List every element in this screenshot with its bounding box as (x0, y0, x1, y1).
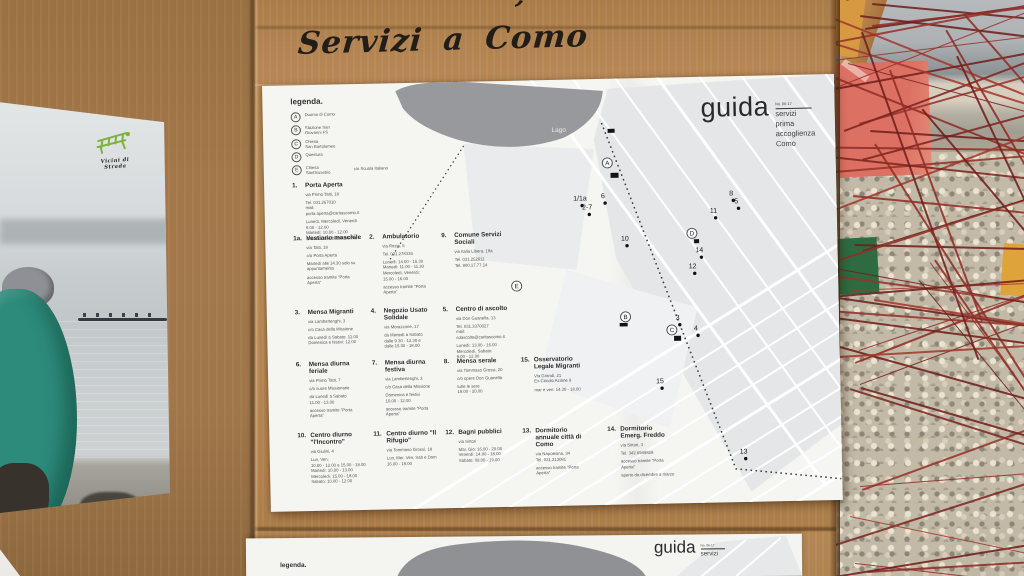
listing-item: 4.Negozio Usato Solidalevia Morazzone, 1… (371, 306, 440, 349)
listing-name: 5.Centro di ascolto (443, 305, 511, 314)
listing-detail-line: Sabato: 09.00 - 19.00 (459, 457, 514, 464)
legend-item-label: Stazione SanGiovanni FS (305, 124, 349, 135)
bottom-header-column: No. 06-17 servizi (700, 543, 724, 557)
listing-details: via Sirtori, 3Tel. 342.6949828accesso tr… (621, 441, 677, 478)
listing-name: 14.Dormitorio Emerg. Freddo (607, 424, 675, 440)
legend: legenda. ADuomo di ComoBStazione SanGiov… (290, 95, 410, 179)
legend-item: DQuestura (291, 150, 409, 162)
listing-detail-line: dalle 15.00 - 18.00 (384, 342, 439, 349)
listing-details: via Primo Tatti, 7c/o suore Missionaried… (309, 377, 365, 419)
poster-header-column: No. 06-17 serviziprimaaccoglienzaComo (775, 101, 816, 149)
listing-name: 1a.Vestiario maschile (293, 234, 361, 243)
marker-label: 11 (710, 208, 718, 215)
bottom-poster-edition: No. 06-17 (700, 543, 724, 549)
listing-title: Centro di ascolto (456, 305, 508, 313)
listing-detail-line: Tel. 800.17.77.14 (455, 261, 510, 268)
listing-detail-line: 19.00 - 20.00 (457, 388, 512, 395)
listing-name: 11.Centro diurno "Il Rifugio" (373, 429, 441, 445)
legend-item-label: ChiesaSan Bartolomeo (305, 138, 349, 149)
listing-number: 13. (522, 427, 532, 449)
cardboard-fold-left (247, 0, 259, 576)
legend-item-label: ChiesaSant'Eusebio (306, 164, 350, 175)
listing-number: 12. (445, 429, 455, 436)
listing-detail-line: mail: cdascolto@caritascomo.it (456, 328, 511, 340)
listing-item: 14.Dormitorio Emerg. Freddovia Sirtori, … (607, 424, 676, 478)
listing-details: Via Grandi, 21Ex-Circolo Azione 9mar e v… (534, 372, 589, 392)
legend-item: EChiesaSant'Eusebioc/o Scuola Italiano (292, 163, 410, 176)
legend-item-note: c/o Scuola Italiano (354, 165, 398, 171)
bottom-poster-subtitle: servizi (701, 550, 725, 557)
legend-letter-badge: E (292, 165, 302, 175)
marker-label: 5 (734, 198, 738, 205)
listing-item: 1.Porta Apertavia Primo Tatti, 18Tel. 03… (292, 181, 361, 241)
listing-details: via Lambertenghi, 3c/o Casa della Missio… (308, 318, 364, 346)
listing-number: 1. (292, 182, 302, 189)
listing-name: 15.Osservatorio Legale Migranti (521, 355, 589, 371)
map-letter-marker: E (512, 281, 522, 291)
listing-title: Osservatorio Legale Migranti (534, 355, 589, 371)
listing-name: 9.Comune Servizi Sociali (441, 231, 509, 247)
listing-number: 8. (444, 358, 454, 365)
marker-label: 14 (695, 247, 703, 254)
listing-details: via Tommaso Grossi, 20c/o opere Don Guan… (457, 367, 513, 395)
listing-number: 9. (441, 232, 451, 247)
listing-title: Mensa Migranti (308, 308, 354, 316)
listing-detail-line: mail: porta.aperta@caritascomo.it (306, 204, 361, 216)
listing-number: 11. (373, 431, 383, 446)
legend-letter-badge: A (291, 112, 301, 122)
listing-title: Dormitorio annuale città di Como (535, 426, 590, 449)
legend-item: ADuomo di Como (291, 110, 409, 122)
listing-number: 4. (371, 308, 381, 323)
listing-item: 3.Mensa Migrantivia Lambertenghi, 3c/o C… (295, 308, 364, 346)
listing-title: Comune Servizi Sociali (454, 231, 509, 247)
map-letter-marker: A (602, 158, 612, 168)
legend-items: ADuomo di ComoBStazione SanGiovanni FSCC… (291, 110, 410, 176)
legend-letter-badge: B (291, 125, 301, 135)
marker-label: 15 (656, 378, 664, 385)
bottom-lake-shape (396, 539, 646, 576)
marker-label: 8 (729, 190, 733, 197)
legend-item: BStazione SanGiovanni FS (291, 123, 409, 136)
listing-detail-line: Lun, Mer, Ven, Sab e Dom (387, 454, 442, 461)
listing-item: 8.Mensa seralevia Tommaso Grossi, 20c/o … (444, 357, 513, 395)
listing-number: 14. (607, 426, 617, 441)
yarn-string (872, 0, 1024, 27)
vicini-di-strada-logo: Vicini di Strada (87, 130, 142, 173)
listing-details: via Tatti, 18c/o Porta ApertaMartedì all… (306, 244, 362, 286)
listing-name: 8.Mensa serale (444, 357, 512, 366)
map-letter-marker: D (687, 228, 697, 238)
listing-title: Mensa diurna festiva (385, 358, 440, 374)
listing-item: 6.Mensa diurna ferialevia Primo Tatti, 7… (296, 360, 365, 419)
listing-detail-line: Domenica e festivi: 12.00 (308, 339, 363, 346)
listing-name: 2.Ambulatorio (369, 232, 437, 241)
bottom-legend-title: legenda. (280, 562, 306, 569)
rowers-silhouette (83, 313, 161, 317)
listing-detail-line: accesso tramite "Porta Aperta" (307, 274, 362, 286)
marker-label: 10 (621, 236, 629, 243)
legend-letter-badge: C (291, 139, 301, 149)
yarn-string (836, 435, 1024, 559)
bottom-poster-header: guida No. 06-17 servizi (654, 538, 725, 558)
listing-item: 11.Centro diurno "Il Rifugio"via Tommaso… (373, 429, 442, 467)
listing-detail-line: 16.00 - 19.00 (387, 460, 442, 467)
handwritten-title: Servizi a Como ’ (297, 18, 590, 62)
marker-label: 12 (689, 263, 697, 270)
listing-item: 12.Bagni pubblicivia SirtoriMar, Gio: 16… (445, 428, 514, 464)
listing-name: 1.Porta Aperta (292, 181, 360, 190)
poster-subtitle-line: Como (776, 138, 816, 149)
listing-item: 13.Dormitorio annuale città di Comovia N… (522, 426, 591, 476)
listing-details: via Morazzone, 17da Martedì a Sabatodall… (384, 323, 440, 349)
listing-details: via SirtoriMar, Gio: 16.00 - 20.00Venerd… (458, 438, 514, 464)
listing-title: Ambulatorio (382, 233, 419, 241)
listing-details: via Tommaso Grossi, 18Lun, Mer, Ven, Sab… (387, 446, 442, 466)
listing-item: 15.Osservatorio Legale MigrantiVia Grand… (521, 355, 590, 393)
listing-detail-line: accesso tramite "Porta Aperta" (536, 464, 591, 476)
listing-title: Porta Aperta (305, 181, 343, 189)
legend-title: legenda. (290, 95, 408, 106)
listing-number: 6. (296, 361, 306, 376)
listing-item: 9.Comune Servizi Socialivia Italia Liber… (441, 231, 510, 269)
bench-icon (94, 131, 133, 156)
legend-item-label: Duomo di Como (305, 111, 349, 117)
listing-name: 4.Negozio Usato Solidale (371, 306, 439, 322)
listing-name: 6.Mensa diurna feriale (296, 360, 364, 376)
listing-title: Negozio Usato Solidale (384, 306, 439, 322)
listing-detail-line: aperto da dicembre a marzo (621, 471, 676, 478)
listing-title: Bagni pubblici (458, 428, 502, 436)
legend-item-label: Questura (305, 151, 349, 157)
listing-title: Mensa diurna feriale (309, 360, 364, 376)
listing-number: 10. (297, 432, 307, 447)
listing-detail-line: Sabato: 10.00 - 12.00 (311, 478, 366, 485)
rowing-boat (78, 318, 166, 321)
handwritten-title-text: Servizi a Como (297, 18, 590, 62)
listing-details: via Giulini, 4Lun, Ven:10.00 - 12.00 e 1… (311, 448, 367, 485)
marker-label: 3 (676, 315, 680, 322)
listing-detail-line: mar e ven: 14.30 - 18.00 (534, 386, 589, 393)
listing-title: Vestiario maschile (306, 234, 361, 242)
marker-label: 6 (601, 193, 605, 200)
listing-number: 1a. (293, 235, 303, 242)
listing-details: via Don Guanella, 13Tel. 031.3370027mail… (456, 315, 512, 360)
marker-label: D (690, 230, 695, 237)
listing-number: 15. (521, 356, 531, 371)
listing-item: 5.Centro di ascoltovia Don Guanella, 13T… (443, 305, 512, 360)
listing-name: 12.Bagni pubblici (445, 428, 513, 437)
listing-name: 10.Centro diurno "l'Incontro" (297, 431, 365, 447)
listing-name: 13.Dormitorio annuale città di Como (522, 426, 590, 449)
listing-title: Centro diurno "l'Incontro" (310, 431, 365, 447)
bottom-guide-poster: legenda. guida No. 06-17 servizi (246, 534, 802, 576)
listing-item: 1a.Vestiario maschilevia Tatti, 18c/o Po… (293, 234, 362, 286)
marker-dot (588, 213, 591, 216)
poster-subtitle-line: accoglienza (776, 128, 816, 139)
listing-details: via Napoleona, 34Tel. 031.213081accesso … (536, 450, 592, 476)
listing-number: 7. (372, 360, 382, 375)
legend-item: CChiesaSan Bartolomeo (291, 136, 409, 149)
listing-number: 5. (443, 306, 453, 313)
listing-number: 2. (369, 234, 379, 241)
listing-item: 7.Mensa diurna festivavia Lambertenghi, … (372, 358, 441, 417)
listing-detail-line: Lunedì, Mercoledì, Venerdì (306, 218, 361, 225)
marker-label: 4 (694, 325, 698, 332)
legend-letter-badge: D (291, 152, 301, 162)
listing-title: Dormitorio Emerg. Freddo (620, 424, 675, 440)
marker-label: C (670, 327, 675, 334)
yarn-string (846, 0, 1024, 1)
marker-label: B (623, 314, 627, 321)
marker-label: 1/1a (573, 195, 587, 202)
listing-number: 3. (295, 309, 305, 316)
listing-name: 3.Mensa Migranti (295, 308, 363, 317)
listing-details: via Rezia, 5Tel. 031.278336Lunedì: 14.00… (382, 242, 438, 295)
listing-detail-line: accesso tramite "Porta Aperta" (386, 405, 441, 417)
bottom-poster-title: guida (654, 539, 696, 558)
poster-subtitle: serviziprimaaccoglienzaComo (775, 108, 815, 149)
listing-title: Mensa serale (457, 357, 497, 365)
listing-detail-line: accesso tramite "Porta Aperta" (383, 283, 438, 295)
map-letter-marker: C (667, 325, 677, 335)
marker-label: 2-7 (582, 204, 592, 211)
photo-scene: Servizi a Como ’ Vicini di Strada (0, 0, 1024, 576)
listing-detail-line: accesso tramite "Porta Aperta" (310, 407, 365, 419)
left-photo-poster: Vicini di Strada (0, 99, 170, 513)
listing-details: via Italia Libera, 18aTel. 031.252611Tel… (454, 248, 509, 268)
listing-name: 7.Mensa diurna festiva (372, 358, 440, 374)
listing-item: 2.Ambulatoriovia Rezia, 5Tel. 031.278336… (369, 232, 438, 295)
distant-shoreline (0, 219, 170, 244)
marker-label: E (515, 283, 519, 290)
listing-title: Centro diurno "Il Rifugio" (386, 429, 441, 445)
listing-item: 10.Centro diurno "l'Incontro"via Giulini… (297, 431, 366, 485)
listing-details: via Lambertenghi, 3c/o Casa della Missio… (385, 375, 441, 417)
poster-title: guida (700, 93, 769, 121)
yarn-string (836, 139, 1024, 175)
poster-header: guida No. 06-17 serviziprimaaccoglienzaC… (700, 92, 826, 151)
yarn-string (850, 388, 1024, 499)
wall-background (836, 0, 1024, 576)
red-yarn-strings (836, 0, 1024, 576)
guide-poster: Lago ABCDE1/1a62-73458101112131415 legen… (262, 74, 843, 512)
marker-label: 13 (740, 449, 748, 456)
yarn-string (867, 550, 1024, 573)
lake-label: Lago (551, 127, 566, 134)
map-letter-marker: B (620, 312, 630, 322)
